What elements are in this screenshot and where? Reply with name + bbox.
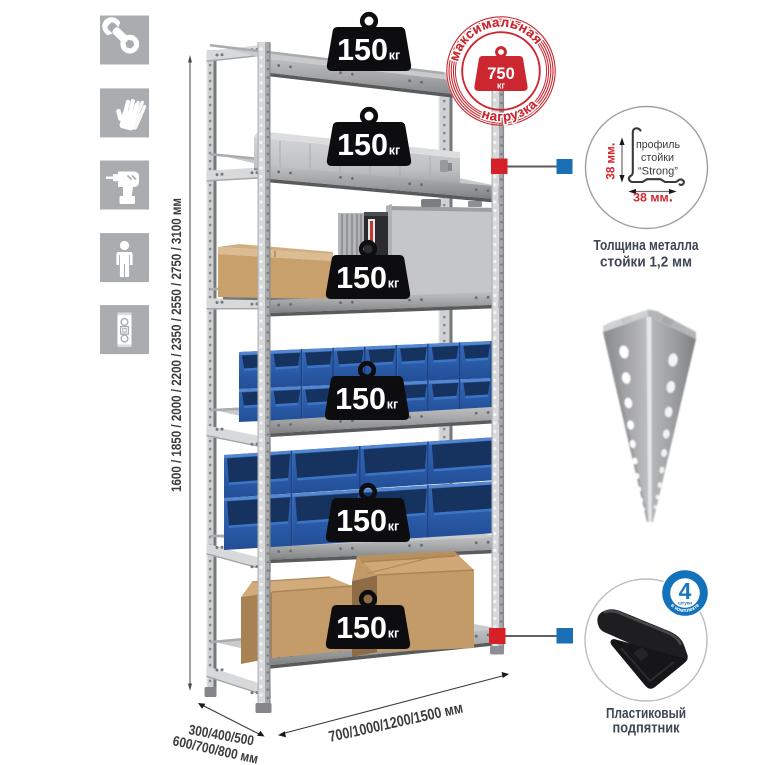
svg-text:1600 / 1850 / 2000 / 2200 / 23: 1600 / 1850 / 2000 / 2200 / 2350 / 2550 … (169, 198, 185, 492)
svg-text:стойки: стойки (641, 152, 674, 164)
svg-text:150: 150 (336, 261, 387, 295)
svg-text:кг: кг (389, 49, 400, 63)
svg-text:кг: кг (387, 398, 398, 412)
svg-text:кг: кг (497, 81, 505, 91)
svg-text:кг: кг (388, 627, 399, 641)
svg-text:150: 150 (336, 611, 387, 645)
svg-text:кг: кг (389, 144, 400, 158)
svg-text:700/1000/1200/1500 мм: 700/1000/1200/1500 мм (327, 700, 464, 746)
svg-text:профиль: профиль (636, 139, 680, 151)
svg-text:стойки 1,2 мм: стойки 1,2 мм (600, 254, 692, 271)
svg-text:38 мм.: 38 мм. (633, 189, 673, 206)
svg-text:150: 150 (335, 382, 386, 416)
svg-text:Толщина металла: Толщина металла (594, 237, 700, 254)
svg-text:38 мм.: 38 мм. (602, 142, 618, 179)
svg-text:“Strong”: “Strong” (638, 166, 678, 178)
svg-text:150: 150 (336, 504, 387, 538)
svg-text:150: 150 (337, 33, 388, 67)
svg-text:подпятник: подпятник (613, 720, 680, 737)
svg-text:штуки: штуки (678, 600, 692, 605)
svg-text:кг: кг (388, 520, 399, 534)
svg-text:кг: кг (388, 277, 399, 291)
svg-text:150: 150 (337, 128, 388, 162)
